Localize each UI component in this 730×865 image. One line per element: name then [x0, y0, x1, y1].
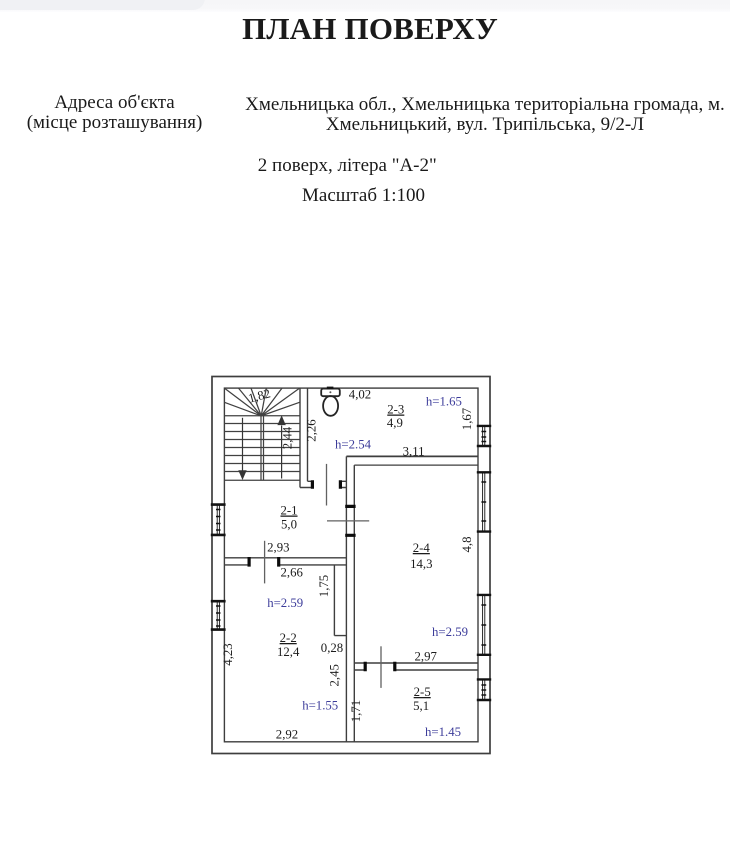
- svg-text:2,93: 2,93: [267, 541, 289, 555]
- svg-text:12,4: 12,4: [277, 645, 300, 659]
- svg-text:5,0: 5,0: [281, 518, 297, 532]
- svg-text:3,11: 3,11: [403, 444, 425, 458]
- svg-text:2-4: 2-4: [413, 541, 431, 555]
- svg-text:2,44: 2,44: [281, 426, 295, 449]
- svg-text:4,02: 4,02: [349, 388, 371, 402]
- svg-text:1,75: 1,75: [317, 575, 331, 597]
- svg-text:2,97: 2,97: [414, 650, 437, 664]
- svg-text:2-2: 2-2: [280, 631, 297, 645]
- svg-text:4,9: 4,9: [387, 416, 403, 430]
- svg-text:h=2.54: h=2.54: [335, 437, 372, 451]
- svg-text:h=1.45: h=1.45: [425, 725, 461, 739]
- svg-text:1,71: 1,71: [349, 700, 363, 722]
- svg-text:2-1: 2-1: [280, 504, 297, 518]
- svg-text:4,23: 4,23: [221, 643, 235, 665]
- svg-text:2,26: 2,26: [305, 419, 319, 442]
- svg-text:2,45: 2,45: [328, 664, 342, 686]
- svg-text:0,28: 0,28: [321, 641, 343, 655]
- svg-text:5,1: 5,1: [413, 699, 429, 713]
- svg-text:4,8: 4,8: [460, 537, 474, 553]
- svg-text:2,92: 2,92: [276, 728, 298, 742]
- svg-text:h=1.65: h=1.65: [426, 395, 462, 409]
- svg-text:h=2.59: h=2.59: [432, 625, 468, 639]
- svg-text:1,82: 1,82: [247, 386, 272, 405]
- svg-text:2-3: 2-3: [387, 403, 404, 417]
- svg-text:2,66: 2,66: [280, 566, 303, 580]
- svg-text:2-5: 2-5: [414, 685, 431, 699]
- svg-text:1,67: 1,67: [460, 407, 474, 430]
- svg-text:14,3: 14,3: [410, 557, 432, 571]
- svg-text:h=2.59: h=2.59: [267, 596, 303, 610]
- svg-text:h=1.55: h=1.55: [302, 699, 338, 713]
